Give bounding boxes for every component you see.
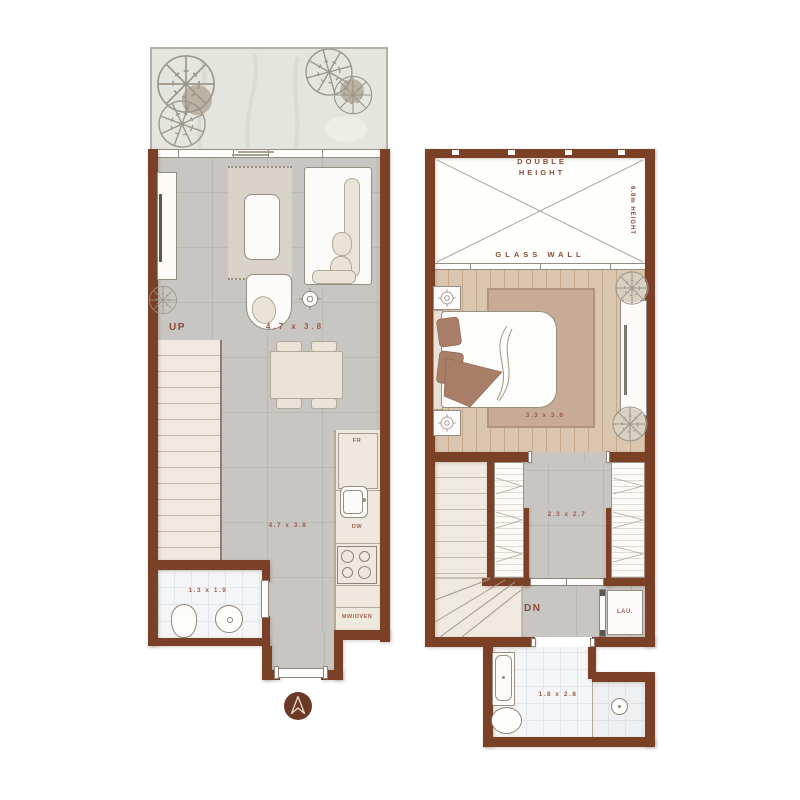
dn-label: DN <box>524 603 541 614</box>
wall <box>524 508 529 586</box>
sink-basin <box>343 490 363 514</box>
door-jamb <box>323 666 328 679</box>
burner <box>342 567 353 578</box>
glass-wall-label: GLASS WALL <box>465 250 615 259</box>
wall <box>592 637 655 647</box>
nightstand <box>433 286 461 310</box>
glass-wall-post <box>470 263 471 270</box>
toilet <box>171 604 197 638</box>
double-height-label-line2: HEIGHT <box>477 168 607 177</box>
door-meeting-stile <box>566 578 567 586</box>
dining-chair <box>311 398 337 409</box>
stairs-down-straight <box>435 462 490 578</box>
window-mark <box>565 150 572 155</box>
glass-wall-post <box>610 263 611 270</box>
door-jamb <box>590 638 595 647</box>
floor-plan-page: UP 4.7 x 3.8 4.7 x 3.8 1.3 x 1.9 FR DW M… <box>0 0 800 800</box>
bathtub-drain <box>502 676 505 679</box>
window-mark <box>618 150 625 155</box>
wall <box>148 638 270 646</box>
bed <box>441 311 557 408</box>
coffee-table <box>244 194 280 260</box>
door-hinge <box>600 630 605 636</box>
burner <box>341 550 354 563</box>
dining-chair <box>311 341 337 352</box>
dressing-dimension-label: 2.3 x 2.7 <box>524 511 610 518</box>
shower-drain-dot <box>618 705 621 708</box>
bedroom-dimension-label: 3.3 x 3.8 <box>502 412 588 419</box>
glass-wall-post <box>540 263 541 270</box>
window-mark <box>508 150 515 155</box>
wall <box>262 616 270 646</box>
faucet <box>362 498 366 502</box>
wall <box>604 578 646 586</box>
terrace <box>150 47 388 152</box>
wall <box>482 578 530 586</box>
basin-drain <box>227 617 233 623</box>
kitchen-dimension-label: 4.7 x 3.8 <box>243 522 333 529</box>
bathroom1-door <box>261 580 269 618</box>
tv <box>159 194 162 262</box>
door-jamb <box>274 666 279 679</box>
window-mark <box>452 150 459 155</box>
nightstand <box>433 410 461 436</box>
closet-right <box>611 462 645 578</box>
dishwasher-label: DW <box>335 524 379 530</box>
bathroom1-dimension-label: 1.3 x 1.9 <box>165 587 251 594</box>
counter-divider <box>336 607 380 608</box>
sofa-armrest <box>312 270 356 284</box>
closet-left <box>494 462 524 578</box>
wall <box>435 452 530 462</box>
living-dimension-label: 4.7 x 3.8 <box>250 322 340 331</box>
bedroom-doorway <box>530 452 608 462</box>
fridge-label: FR <box>335 438 379 444</box>
sliding-door-leaf <box>238 151 274 153</box>
entrance-door <box>278 668 324 678</box>
wardrobe-handle <box>624 325 627 395</box>
wall <box>380 149 390 642</box>
door-hinge <box>600 590 605 596</box>
wall <box>148 560 270 570</box>
double-height-label-line1: DOUBLE <box>477 157 607 166</box>
counter-divider <box>336 543 380 544</box>
laundry-label: LAU. <box>607 609 643 615</box>
up-label: UP <box>169 322 186 333</box>
sliding-door-leaf <box>232 154 268 156</box>
counter-divider <box>336 585 380 586</box>
window-mullion <box>178 149 179 158</box>
north-arrow-icon <box>284 692 312 720</box>
mw-oven-label: MW/OVEN <box>333 614 381 620</box>
window-mullion <box>322 149 323 158</box>
wall <box>483 737 655 747</box>
wall <box>487 462 494 586</box>
door-jamb <box>531 638 536 647</box>
stairs-up <box>158 340 222 562</box>
wall <box>425 637 535 647</box>
stairs-down-winder <box>435 578 522 638</box>
dressing-double-door <box>530 578 604 586</box>
wall <box>334 630 390 640</box>
door-jamb <box>528 451 532 463</box>
dining-chair <box>276 341 302 352</box>
sofa-pillow <box>332 232 352 256</box>
decorative-overlay <box>0 0 800 800</box>
burner <box>359 551 370 562</box>
wall <box>608 452 645 462</box>
bathroom2-dimension-label: 1.8 x 2.8 <box>514 691 602 698</box>
dining-table <box>270 351 343 399</box>
burner <box>358 566 371 579</box>
dining-chair <box>276 398 302 409</box>
door-jamb <box>606 451 610 463</box>
toilet <box>491 707 522 734</box>
wall <box>592 672 655 682</box>
ceiling-height-label: 6.8m HEIGHT <box>629 186 635 235</box>
